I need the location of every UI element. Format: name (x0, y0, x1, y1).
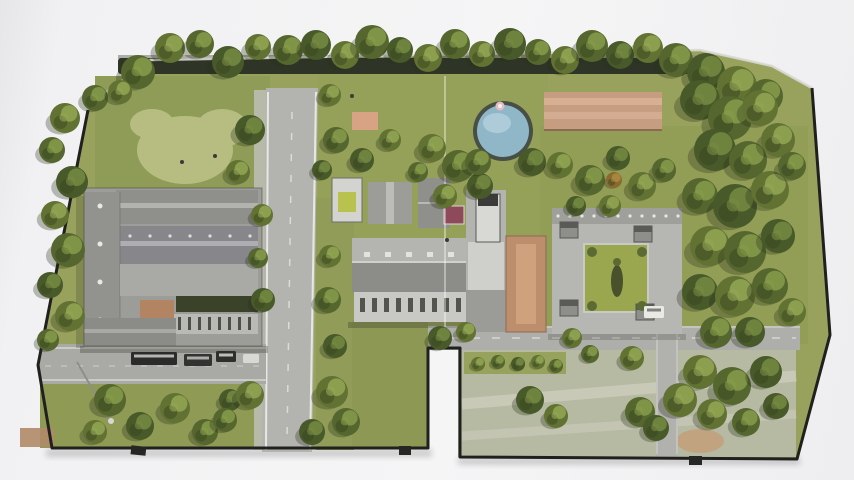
tree-texture (475, 362, 479, 366)
tree-texture (586, 40, 596, 50)
model-truck (216, 351, 236, 362)
palace-arcade-column (228, 317, 231, 330)
model-bus (131, 352, 177, 365)
tree-texture (331, 135, 339, 143)
sand-patch (676, 429, 724, 453)
tree-texture (737, 245, 750, 258)
hall-arch (456, 298, 461, 312)
tree-texture (326, 252, 333, 259)
model-car-white-body (644, 306, 664, 318)
palace-arcade-column (238, 317, 241, 330)
tree-texture (435, 334, 442, 341)
tree-texture (366, 36, 376, 46)
palace-shadow (80, 346, 268, 353)
tree-texture (258, 211, 265, 218)
garden-wall-post (640, 214, 643, 217)
tree-texture (637, 181, 645, 189)
tree-texture (104, 394, 114, 404)
tree-texture (475, 181, 483, 189)
lawn-light-patch (130, 109, 174, 139)
palace-arcade-column (198, 317, 201, 330)
tree-texture (244, 125, 253, 134)
terracotta-plaza (544, 92, 662, 130)
hall-arch (360, 298, 365, 312)
hall-arch (408, 298, 413, 312)
tree-texture (318, 167, 324, 173)
model-figure (180, 160, 184, 164)
palace-arcade (174, 314, 258, 334)
palace-north-ridge (116, 203, 258, 208)
garden-wall-post (676, 214, 679, 217)
tree-texture (710, 326, 720, 336)
plate-shadow-left (46, 449, 432, 457)
tree-texture (427, 143, 435, 151)
tree-texture (282, 45, 291, 54)
tree-texture (772, 230, 782, 240)
tree-texture (253, 42, 261, 50)
terracotta-plaza-stripe (544, 98, 662, 105)
model-car-white (644, 306, 664, 318)
tree-texture (651, 423, 659, 431)
tree-texture (787, 161, 795, 169)
tree-texture (725, 379, 736, 390)
hall-roof-north (352, 238, 468, 262)
hall-dormer (364, 252, 370, 257)
tree-texture (307, 427, 315, 435)
terracotta-courtyard-stripe (516, 244, 536, 324)
board-clamp-tab (131, 445, 147, 456)
garden-wall-post (580, 214, 583, 217)
tree-texture (560, 55, 568, 63)
board-clamp-tab (689, 456, 702, 465)
palace-dormer (228, 234, 231, 237)
tree-texture (674, 394, 684, 404)
hall-arch (384, 298, 389, 312)
tree-texture (90, 93, 98, 101)
hall-arch (420, 298, 425, 312)
tree-texture (45, 280, 53, 288)
palace-arcade-column (248, 317, 251, 330)
palace-dormer (208, 234, 211, 237)
tree-texture (727, 198, 740, 211)
tree-texture (555, 160, 563, 168)
tree-texture (195, 39, 203, 47)
hall-dormer (385, 252, 391, 257)
tree-texture (611, 177, 616, 182)
tower-wing-court (468, 242, 504, 290)
scene-root (20, 25, 830, 465)
tree-texture (414, 169, 420, 175)
palace-arcade-column (178, 317, 181, 330)
palace-chimney (98, 242, 103, 247)
tree-texture (787, 307, 795, 315)
tree-texture (226, 396, 233, 403)
tree-texture (462, 329, 468, 335)
garden-statue-top (613, 258, 621, 266)
palace-south-ridge (84, 329, 176, 333)
terracotta-plaza-stripe (544, 112, 662, 119)
model-bus-windows (187, 357, 209, 360)
tree-texture (634, 407, 643, 416)
tree-texture (233, 168, 240, 175)
tree-texture (693, 286, 704, 297)
tree-texture (50, 210, 58, 218)
tree-texture (744, 327, 753, 336)
model-figure (350, 94, 354, 98)
model-tree (46, 103, 81, 135)
pond-sheen (483, 113, 511, 133)
tree-texture (727, 289, 739, 301)
hall-arch (432, 298, 437, 312)
tree-texture (310, 40, 319, 49)
tree-texture (763, 183, 774, 194)
garden-bush (587, 247, 597, 257)
garden-corner-pavilion-cap (560, 222, 578, 228)
tree-texture (760, 366, 770, 376)
tree-texture (707, 143, 720, 156)
tree-texture (44, 336, 51, 343)
tree-texture (115, 88, 122, 95)
tree-texture (200, 427, 208, 435)
tree-texture (699, 65, 710, 76)
garden-bush (637, 247, 647, 257)
tree-texture (572, 203, 578, 209)
tree-texture (495, 360, 499, 364)
tree-texture (135, 421, 143, 429)
palace-arcade-column (218, 317, 221, 330)
tree-texture (452, 160, 462, 170)
tree-texture (423, 53, 431, 61)
model-tree (182, 30, 214, 59)
garden-statue (611, 265, 623, 297)
tree-texture (772, 134, 782, 144)
tree-texture (386, 136, 393, 143)
tree-texture (164, 43, 173, 52)
tree-texture (533, 47, 541, 55)
tree-texture (535, 360, 539, 364)
tree-texture (642, 43, 651, 52)
tree-texture (340, 50, 348, 58)
tree-texture (326, 91, 333, 98)
board-clamp-tab (399, 446, 411, 455)
tree-texture (395, 45, 403, 53)
model-car-white-windows (647, 309, 661, 312)
tree-texture (62, 244, 72, 254)
model-tree (35, 137, 65, 164)
hall-shadow (348, 322, 468, 328)
garden-wall-post (652, 214, 655, 217)
tree-texture (326, 386, 336, 396)
tree-texture (741, 153, 752, 164)
garden-wall-post (664, 214, 667, 217)
tree-texture (525, 395, 533, 403)
tree-texture (693, 190, 704, 201)
tree-texture (473, 157, 481, 165)
tree-texture (64, 311, 73, 320)
garden-wall-post (616, 214, 619, 217)
tree-texture (587, 351, 592, 356)
tree-texture (702, 239, 714, 251)
model-bus-body (184, 354, 212, 366)
plum-roof-building (444, 206, 464, 224)
tree-texture (477, 49, 485, 57)
main-road (262, 88, 318, 452)
tree-texture (440, 192, 447, 199)
hall-arch (372, 298, 377, 312)
tree-texture (722, 110, 735, 123)
tree-texture (615, 50, 623, 58)
tree-texture (323, 295, 331, 303)
tree-texture (706, 409, 715, 418)
model-bus-windows (134, 355, 174, 358)
tree-texture (245, 390, 253, 398)
tree-texture (341, 417, 349, 425)
tree-texture (584, 175, 593, 184)
model-bus (184, 354, 212, 366)
tree-texture (741, 417, 749, 425)
tree-texture (753, 102, 764, 113)
model-figure (445, 238, 449, 242)
palace-dormer (128, 234, 131, 237)
hip-roof-ridge (386, 182, 394, 224)
lamp-post-head (108, 418, 114, 424)
palace-dormer (188, 234, 191, 237)
tree-texture (357, 156, 364, 163)
hall-dormer (448, 252, 454, 257)
tree-texture (527, 157, 535, 165)
hall-dormer (406, 252, 412, 257)
palace-hedge-row (176, 296, 258, 312)
hall-dormer (427, 252, 433, 257)
tree-texture (220, 416, 227, 423)
tree-texture (66, 176, 76, 186)
model-figure (213, 154, 217, 158)
garden-hut (352, 112, 378, 130)
garden-wall-post (592, 214, 595, 217)
model-van-white (243, 354, 259, 363)
tree-texture (330, 342, 337, 349)
model-truck-windows (219, 354, 233, 357)
garden-wall-post (556, 214, 559, 217)
tree-texture (613, 154, 620, 161)
tree-texture (222, 56, 232, 66)
palace-arcade-column (188, 317, 191, 330)
tree-texture (504, 38, 514, 48)
tree-texture (449, 39, 458, 48)
tree-texture (258, 296, 265, 303)
tree-texture (47, 145, 55, 153)
tree-texture (169, 403, 178, 412)
photo-backdrop (0, 0, 854, 480)
tree-texture (627, 354, 634, 361)
garden-corner-pavilion-cap (634, 226, 652, 232)
palace-arcade-column (208, 317, 211, 330)
hall-roof-south (352, 262, 468, 292)
palace-dormer (168, 234, 171, 237)
palace-chimney (98, 204, 103, 209)
model-bus-body (131, 352, 177, 365)
tree-texture (692, 93, 704, 105)
tree-texture (694, 366, 704, 376)
garden-bush (587, 301, 597, 311)
palace-dormer (148, 234, 151, 237)
tree-texture (515, 362, 519, 366)
tree-texture (729, 79, 741, 91)
palace-court-path (120, 264, 258, 296)
hall-arch (396, 298, 401, 312)
garden-corner-pavilion-cap (560, 300, 578, 306)
tree-texture (553, 364, 557, 368)
tree-texture (771, 401, 779, 409)
tree-texture (551, 412, 558, 419)
tree-texture (670, 54, 680, 64)
tree-texture (90, 428, 97, 435)
palace-chimney (98, 280, 103, 285)
tree-texture (132, 66, 142, 76)
tree-texture (254, 255, 260, 261)
model-van-white-body (243, 354, 259, 363)
tree-texture (659, 166, 666, 173)
tree-texture (606, 202, 613, 209)
mid-low-lawn (352, 320, 428, 448)
garden-wall-post (628, 214, 631, 217)
tree-texture (763, 280, 774, 291)
model-scene (0, 0, 854, 480)
tree-texture (59, 113, 68, 122)
pond-fountain-center (498, 104, 502, 108)
palace-dormer (248, 234, 251, 237)
tree-texture (568, 335, 574, 341)
pavilion-skylight (338, 192, 356, 212)
